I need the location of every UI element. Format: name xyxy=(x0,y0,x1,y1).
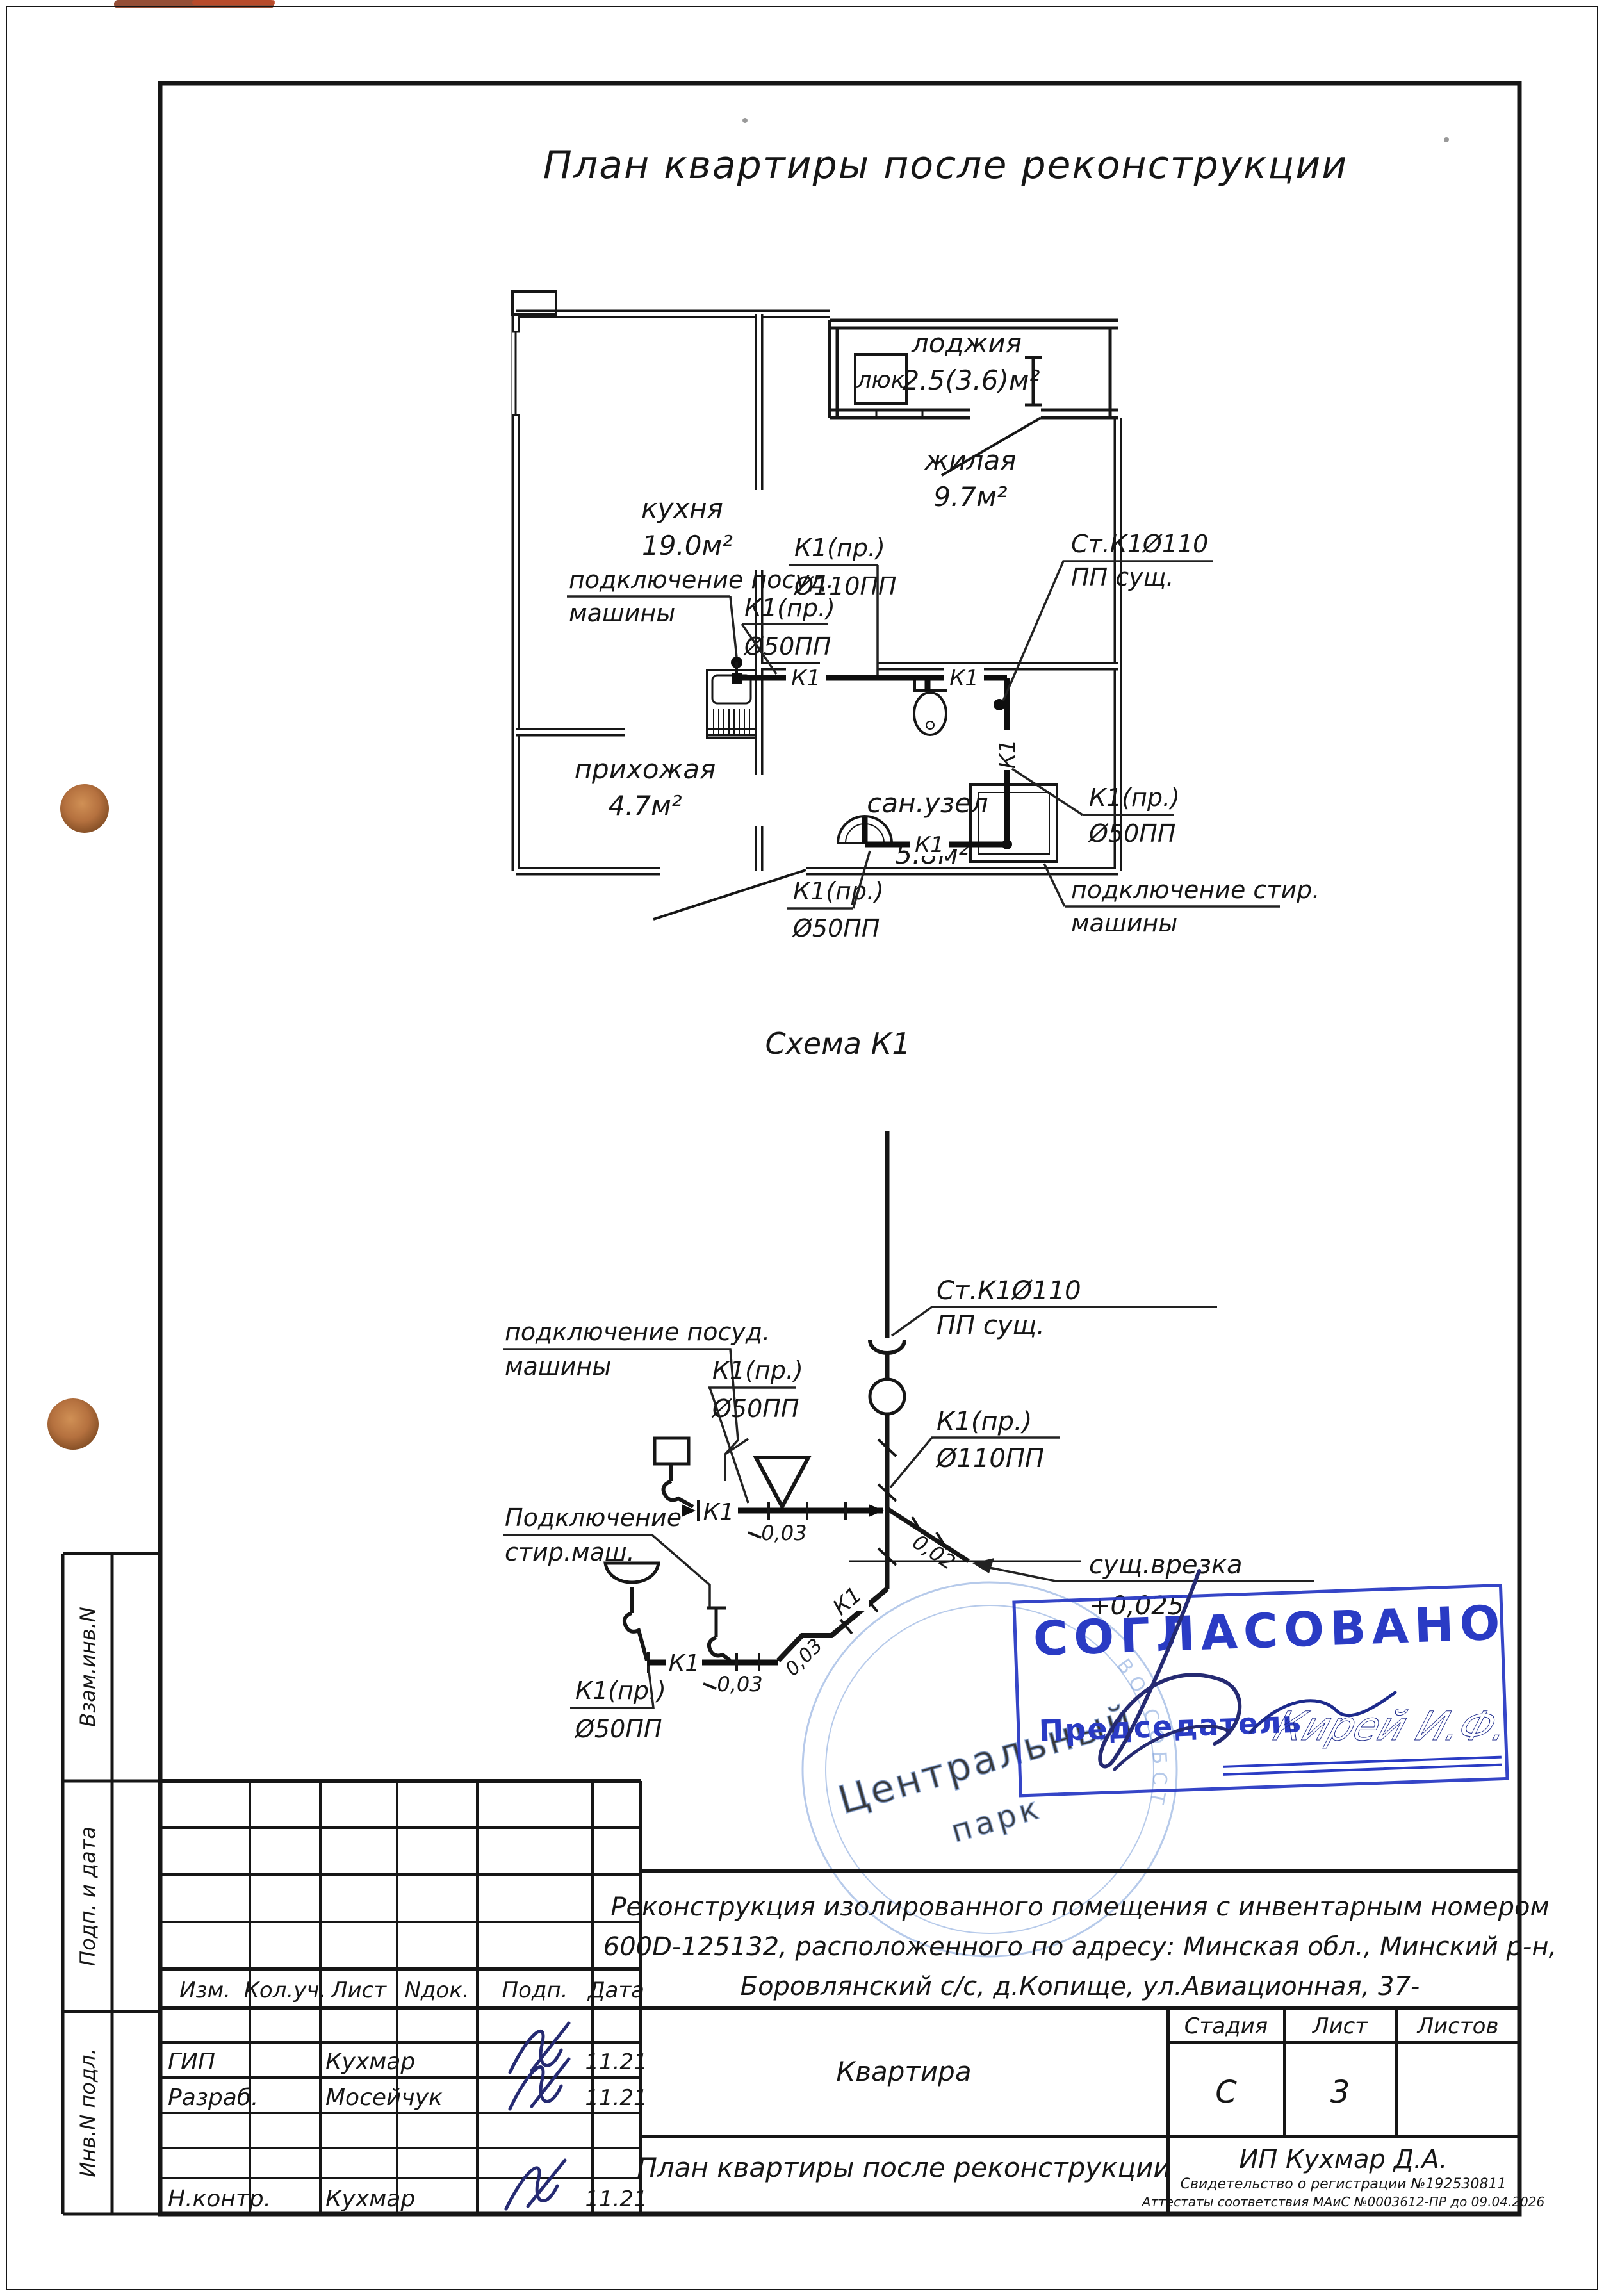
side-label-middle: Подп. и дата xyxy=(76,1826,100,1966)
punch-hole-bottom xyxy=(47,1398,99,1450)
side-label-bottom: Инв.N подл. xyxy=(76,2048,100,2177)
row-role: ГИП xyxy=(168,2049,215,2075)
k1-label: К1(пр.) xyxy=(744,594,835,622)
pipe-tag: К1 xyxy=(915,832,944,858)
schema-k1-label: К1(пр.) xyxy=(937,1407,1032,1436)
loggia-name: лоджия xyxy=(911,327,1022,359)
schema-k1-label: Ø50ПП xyxy=(574,1715,662,1743)
slope-label: 0,03 xyxy=(717,1672,762,1696)
schema-washbasin-branch xyxy=(605,1563,730,1660)
round-stamp-center2: парк xyxy=(947,1790,1046,1850)
row-role: Н.контр. xyxy=(168,2186,271,2212)
pipe-tag: К1 xyxy=(791,666,821,691)
row-name: Кухмар xyxy=(325,2186,415,2212)
schema-riser xyxy=(870,1131,904,1589)
approval-stamp: СОГЛАСОВАНО Председатель xyxy=(1014,1585,1511,1796)
living-area: 9.7м² xyxy=(933,481,1007,512)
scan-artifacts xyxy=(47,0,1449,1450)
stack-label: ПП сущ. xyxy=(1071,563,1174,591)
tiein-label: сущ.врезка xyxy=(1089,1550,1243,1580)
washer-note: машины xyxy=(1071,909,1177,937)
schema-k1-label: Ø50ПП xyxy=(711,1395,799,1423)
k1-label: К1(пр.) xyxy=(794,534,885,562)
slope-label: 0,03 xyxy=(761,1521,806,1545)
floor-plan: люк лоджия 2.5(3.6)м² кухня 19.0м² жилая… xyxy=(512,291,1320,942)
firm-line2: Свидетельство о регистрации №192530811 xyxy=(1181,2176,1507,2192)
schema-k1-label: Ø110ПП xyxy=(935,1444,1044,1473)
washer-note: подключение стир. xyxy=(1071,876,1320,904)
col-koluch: Кол.уч. xyxy=(244,1978,327,2003)
hall-area: 4.7м² xyxy=(608,790,682,821)
schema-washer-note: стир.маш. xyxy=(505,1538,635,1566)
stack-label: Ст.К1Ø110 xyxy=(1071,530,1208,558)
living-name: жилая xyxy=(924,445,1017,476)
hall-name: прихожая xyxy=(575,753,716,785)
schema-dishwasher-note: подключение посуд. xyxy=(505,1318,770,1346)
pipe-tag: К1 xyxy=(669,1650,700,1677)
firm-line3: Аттестаты соответствия МАиС №0003612-ПР … xyxy=(1141,2194,1544,2210)
row-role: Разраб. xyxy=(168,2085,258,2111)
page-title: План квартиры после реконструкции xyxy=(543,143,1348,188)
col-data: Дата xyxy=(587,1978,644,2003)
sheet-title-1: План квартиры после реконструкции xyxy=(637,2152,1170,2183)
kitchen-area: 19.0м² xyxy=(642,530,733,561)
signature-name: Кирей И.Ф. xyxy=(1268,1703,1514,1750)
punch-hole-top xyxy=(60,784,109,833)
schema-lower-pipe: К1 0,03 xyxy=(648,1650,778,1696)
stage-header: Стадия xyxy=(1184,2013,1268,2039)
row-name: Кухмар xyxy=(325,2049,415,2075)
description-1: Реконструкция изолированного помещения с… xyxy=(610,1892,1549,1922)
loggia-area: 2.5(3.6)м² xyxy=(903,365,1040,396)
stage-value: С xyxy=(1215,2074,1237,2110)
kitchen-name: кухня xyxy=(641,493,723,524)
k1-label: Ø50ПП xyxy=(1088,819,1175,848)
row-date: 11.21 xyxy=(585,2186,647,2212)
description-3: Боровлянский с/с, д.Копище, ул.Авиационн… xyxy=(741,1972,1420,2001)
hatch-label: люк xyxy=(856,367,904,393)
row-date: 11.21 xyxy=(585,2049,647,2075)
col-list: Лист xyxy=(330,1978,387,2003)
schema-stack-label: ПП сущ. xyxy=(937,1311,1045,1340)
schema-washer-note: Подключение xyxy=(505,1504,682,1532)
schema-stack-label: Ст.К1Ø110 xyxy=(937,1276,1081,1306)
firm-name: ИП Кухмар Д.А. xyxy=(1239,2145,1447,2174)
k1-label: Ø50ПП xyxy=(792,914,880,942)
plan-annotations: подключение посуд. машины К1(пр.) Ø110ПП… xyxy=(567,530,1320,942)
dishwasher-note: машины xyxy=(569,599,675,627)
sheets-header: Листов xyxy=(1416,2013,1498,2039)
description-2: 600D-125132, расположенного по адресу: М… xyxy=(603,1932,1557,1962)
pipe-tag: К1 xyxy=(995,739,1020,769)
slope-label: 0,03 xyxy=(781,1634,827,1680)
row-name: Мосейчук xyxy=(325,2085,443,2111)
scanned-drawing-page: План квартиры после реконструкции люк ло… xyxy=(0,0,1604,2296)
schema-zigzag: К1 0,03 xyxy=(778,1582,887,1681)
col-izm: Изм. xyxy=(179,1978,231,2003)
row-date: 11.21 xyxy=(585,2085,647,2111)
sheet-value: 3 xyxy=(1330,2074,1350,2110)
col-ndok: Nдок. xyxy=(404,1978,469,2003)
object-label: Квартира xyxy=(836,2056,971,2087)
k1-label: К1(пр.) xyxy=(1089,783,1180,812)
sheet-header: Лист xyxy=(1311,2013,1368,2039)
row-gip: ГИП Кухмар 11.21 xyxy=(168,2023,648,2075)
row-nkontr: Н.контр. Кухмар 11.21 xyxy=(168,2160,648,2212)
pipe-tag: К1 xyxy=(703,1499,734,1525)
side-strip: Взам.инв.N Подп. и дата Инв.N подл. xyxy=(63,1554,160,2214)
side-label-top: Взам.инв.N xyxy=(76,1607,100,1727)
pipe-tag: К1 xyxy=(949,666,979,691)
schema-k1-label: К1(пр.) xyxy=(712,1356,803,1384)
k1-label: К1(пр.) xyxy=(793,877,884,905)
col-podp: Подп. xyxy=(502,1978,568,2003)
schema-heading: Схема К1 xyxy=(765,1026,910,1061)
schema-dishwasher-note: машины xyxy=(505,1352,611,1381)
